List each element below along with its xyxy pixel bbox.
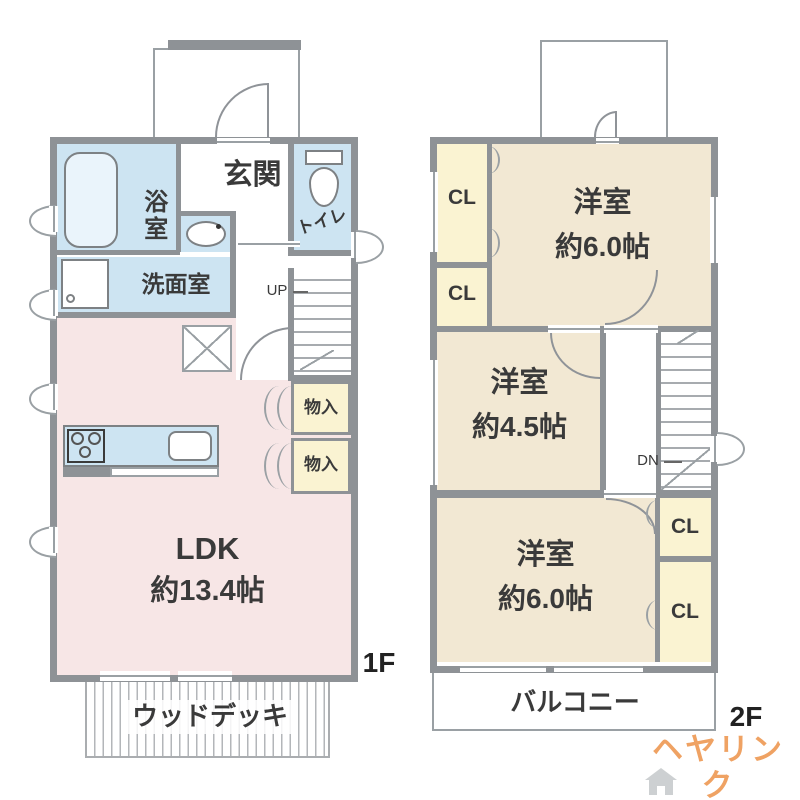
window <box>554 662 643 672</box>
stairs-down-label: DN <box>632 452 664 470</box>
window <box>49 527 58 553</box>
entrance-door-leaf <box>267 83 269 137</box>
entrance-label: 玄関 <box>210 158 295 194</box>
door-opening <box>604 490 656 498</box>
bedroom-bottom-name-label: 洋室 <box>478 538 613 574</box>
wall <box>57 312 236 318</box>
ldk-size-label: 約13.4帖 <box>110 576 305 608</box>
up-leader-line <box>293 291 308 293</box>
floor-hatch <box>182 325 232 372</box>
stairs-up-label: UP <box>262 282 292 300</box>
logo: ヘヤリンク <box>640 744 796 798</box>
burner <box>79 446 91 458</box>
casement-window <box>356 230 384 264</box>
door-opening <box>604 325 658 333</box>
window <box>429 360 438 485</box>
window <box>49 290 58 316</box>
window <box>49 206 58 232</box>
stairs-2f-diagonal <box>661 448 711 490</box>
floor2-label: 2F <box>722 702 770 732</box>
storage-bottom-label: 物入 <box>294 454 348 476</box>
void-door-leaf <box>615 111 617 137</box>
wall <box>437 262 492 268</box>
closet-top-1-label: CL <box>440 186 484 210</box>
wall <box>288 250 358 256</box>
washroom-label: 洗面室 <box>122 269 230 299</box>
window <box>429 172 438 252</box>
ldk-name-label: LDK <box>150 532 265 566</box>
toilet-tank <box>305 150 343 165</box>
floor-plan-image: 玄関 浴室 洗面室 トイレ UP 物入 物入 LDK 約13.4帖 ウッドデッキ… <box>0 0 800 800</box>
stairs-1f-mark <box>300 350 334 370</box>
kitchen-base <box>63 467 110 477</box>
logo-text: ヘヤリンク <box>640 746 796 790</box>
wall <box>437 490 712 498</box>
window <box>178 671 232 681</box>
window <box>100 671 170 681</box>
bedroom-bottom-size-label: 約6.0帖 <box>468 582 623 616</box>
burner <box>88 432 101 445</box>
closet-bottom-2-label: CL <box>663 600 707 624</box>
floor1-label: 1F <box>356 648 402 678</box>
wall <box>176 144 181 252</box>
window <box>460 662 546 672</box>
bedroom-mid-size-label: 約4.5帖 <box>442 410 597 444</box>
window <box>710 436 719 462</box>
porch-top-wall <box>168 40 301 50</box>
kitchen-sink <box>168 431 212 461</box>
casement-window <box>717 432 745 466</box>
window <box>351 232 359 258</box>
wall <box>177 211 236 216</box>
washer-drain <box>66 294 75 303</box>
stairs-2f-arrow <box>677 330 699 344</box>
bedroom-top-size-label: 約6.0帖 <box>525 230 680 264</box>
counter-edge <box>110 467 219 477</box>
bedroom-top-name-label: 洋室 <box>535 186 670 222</box>
basin-faucet <box>216 224 221 229</box>
bedroom-mid-name-label: 洋室 <box>452 366 587 402</box>
burner <box>71 432 84 445</box>
bath-label: 浴室 <box>136 166 170 266</box>
wall <box>655 556 711 562</box>
entrance-opening <box>217 138 270 146</box>
balcony-label: バルコニー <box>490 688 660 718</box>
bathtub <box>64 152 118 248</box>
genkan-step <box>238 241 300 247</box>
wall <box>230 211 236 312</box>
window <box>710 197 719 263</box>
door-opening <box>548 325 600 333</box>
dn-leader-line <box>664 461 682 463</box>
wall <box>600 332 606 490</box>
closet-bottom-1-label: CL <box>663 515 707 539</box>
wood-deck-label: ウッドデッキ <box>125 700 295 734</box>
window <box>49 384 58 410</box>
closet-top-2-label: CL <box>440 282 484 306</box>
storage-top-label: 物入 <box>294 397 348 419</box>
